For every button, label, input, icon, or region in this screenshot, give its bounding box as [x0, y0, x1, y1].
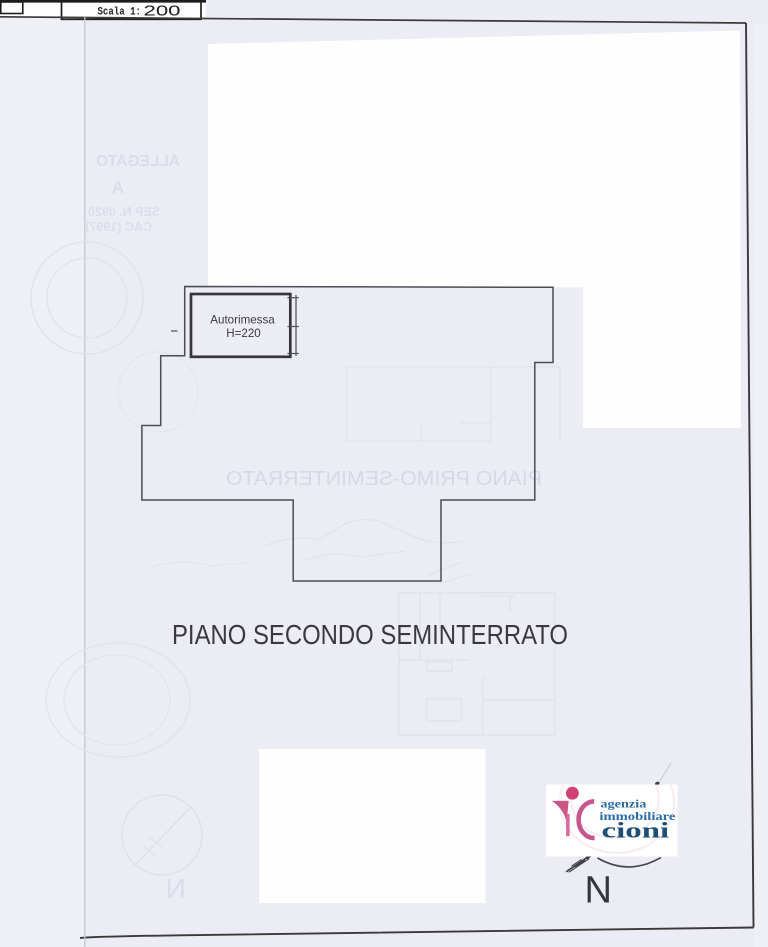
svg-text:PIANO PRIMO-SEMINTERRATO: PIANO PRIMO-SEMINTERRATO — [226, 468, 542, 490]
svg-text:N: N — [166, 873, 186, 904]
svg-text:CAC (1997): CAC (1997) — [85, 220, 152, 234]
svg-text:N: N — [585, 869, 612, 911]
svg-text:PIANO SECONDO SEMINTERRATO: PIANO SECONDO SEMINTERRATO — [172, 619, 568, 650]
svg-text:200: 200 — [144, 2, 181, 19]
svg-text:cioni: cioni — [602, 817, 670, 842]
svg-text:Autorimessa: Autorimessa — [210, 314, 275, 327]
svg-text:H=220: H=220 — [226, 327, 261, 340]
svg-text:Scala 1:: Scala 1: — [98, 7, 142, 19]
svg-text:A: A — [112, 178, 124, 197]
svg-text:SEP N. 0920: SEP N. 0920 — [88, 205, 160, 219]
svg-text:ALLEGATO: ALLEGATO — [96, 153, 180, 170]
